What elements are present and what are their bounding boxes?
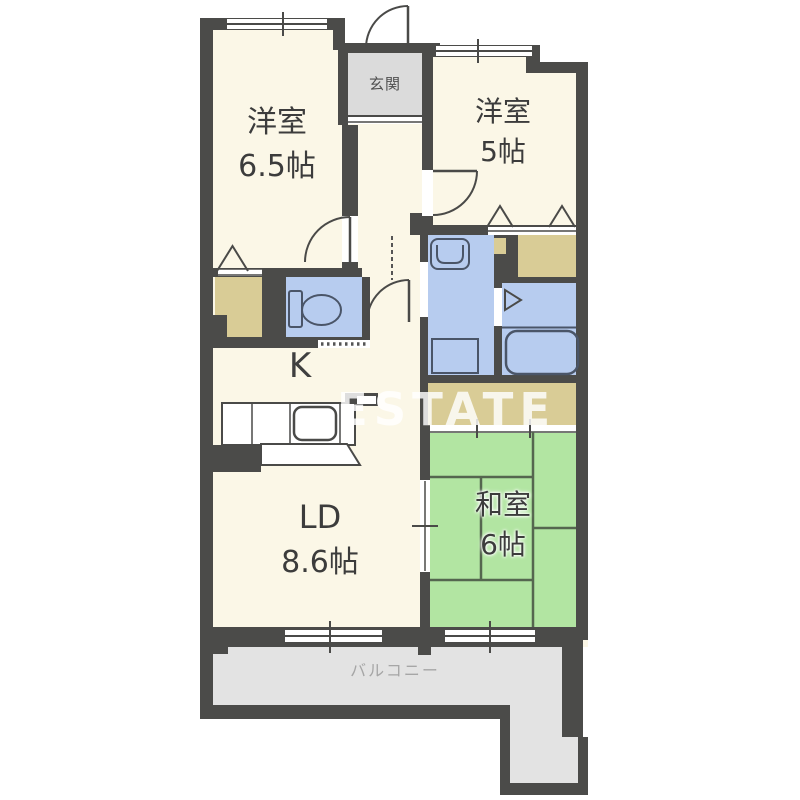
label-balcony: バルコニー (330, 662, 460, 680)
label-western1-size: 6.5帖 (211, 150, 343, 183)
label-western2-name: 洋室 (433, 97, 573, 128)
toilet-room (286, 277, 362, 343)
closet-west2 (518, 235, 576, 277)
label-western2-size: 5帖 (433, 137, 573, 168)
label-kitchen: K (282, 348, 318, 385)
label-entrance: 玄関 (348, 76, 422, 93)
label-ld-name: LD (235, 500, 405, 535)
bathroom (502, 283, 576, 375)
label-japanese-size: 6帖 (430, 530, 576, 561)
floorplan-image: 洋室 6.5帖 玄関 洋室 5帖 K LD 8.6帖 和室 6帖 バルコニー E… (0, 0, 800, 800)
label-western1-name: 洋室 (211, 106, 343, 139)
label-japanese-name: 和室 (430, 490, 576, 521)
watermark-text: ESTATE (337, 383, 577, 436)
label-ld-size: 8.6帖 (235, 546, 405, 579)
